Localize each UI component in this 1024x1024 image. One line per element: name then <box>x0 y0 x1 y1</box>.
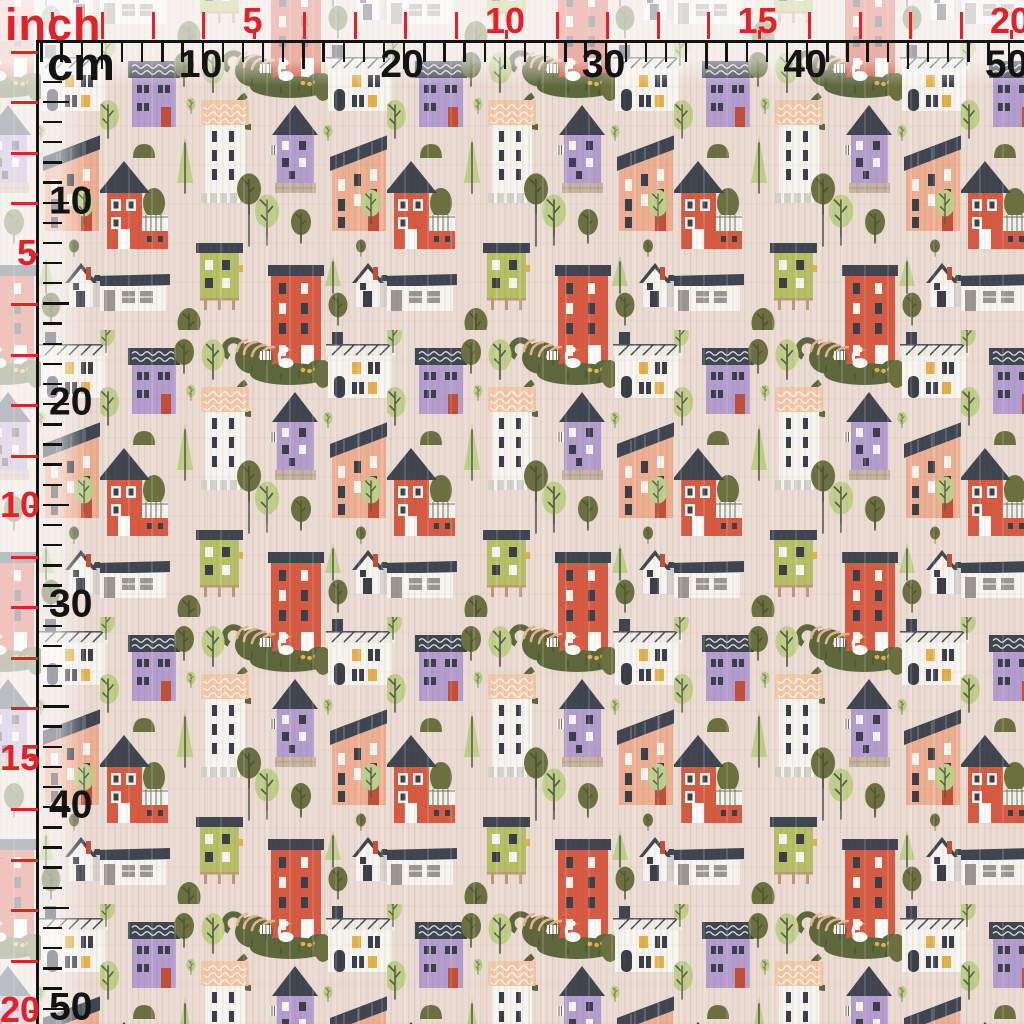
inch-tick <box>11 303 38 306</box>
cm-tick <box>262 43 264 62</box>
cm-tick <box>43 705 69 707</box>
cm-tick <box>242 43 244 62</box>
cm-tick <box>43 967 62 969</box>
cm-tick <box>947 43 949 62</box>
inch-tick <box>11 707 38 710</box>
inch-tick <box>11 152 38 155</box>
inch-tick <box>11 101 38 104</box>
cm-tick <box>40 43 42 62</box>
cm-tick <box>705 43 707 69</box>
cm-number: 50 <box>49 987 92 1024</box>
cm-number: 10 <box>179 45 222 84</box>
inch-tick <box>11 960 38 963</box>
cm-tick <box>443 43 445 62</box>
cm-tick <box>746 43 748 62</box>
cm-tick <box>101 43 103 69</box>
cm-tick <box>43 887 62 889</box>
cm-tick <box>43 302 69 304</box>
cm-tick <box>43 101 69 103</box>
cm-tick <box>907 43 909 69</box>
cm-tick <box>43 746 62 748</box>
cm-tick <box>43 846 62 848</box>
inch-tick <box>11 455 38 458</box>
cm-tick <box>484 43 486 62</box>
cm-number: 30 <box>582 45 625 84</box>
cm-tick <box>43 866 62 868</box>
cm-tick <box>43 947 62 949</box>
inch-number: 10 <box>485 3 525 39</box>
cm-tick <box>524 43 526 62</box>
inch-tick <box>11 606 38 609</box>
cm-number: 20 <box>49 383 92 422</box>
inch-tick <box>859 12 862 39</box>
inch-tick <box>909 12 912 39</box>
cm-tick <box>141 43 143 62</box>
inch-tick <box>404 12 407 39</box>
cm-tick <box>43 343 62 345</box>
inch-number: 15 <box>0 740 37 776</box>
cm-tick <box>43 443 62 445</box>
inch-tick <box>960 12 963 39</box>
cm-tick <box>725 43 727 62</box>
inch-number: 15 <box>737 3 777 39</box>
cm-tick <box>43 81 62 83</box>
inch-tick <box>11 657 38 660</box>
cm-tick <box>967 43 969 62</box>
cm-tick <box>887 43 889 62</box>
inch-tick <box>11 859 38 862</box>
cm-tick <box>43 927 62 929</box>
cm-tick <box>846 43 848 62</box>
inch-tick <box>606 12 609 39</box>
cm-tick <box>43 725 62 727</box>
inch-number: 20 <box>0 992 37 1024</box>
inch-tick <box>303 12 306 39</box>
cm-tick <box>161 43 163 62</box>
cm-tick <box>463 43 465 62</box>
cm-tick <box>43 484 62 486</box>
cm-number: 20 <box>380 45 423 84</box>
cm-tick <box>43 121 62 123</box>
cm-tick <box>363 43 365 62</box>
inch-tick <box>556 12 559 39</box>
cm-tick <box>43 544 62 546</box>
cm-tick <box>43 262 62 264</box>
cm-tick <box>43 907 69 909</box>
cm-number: 10 <box>49 181 92 220</box>
fabric-pattern <box>0 0 1024 1024</box>
cm-tick <box>60 43 62 62</box>
cm-tick <box>685 43 687 62</box>
inch-tick <box>101 12 104 39</box>
cm-tick <box>43 665 62 667</box>
cm-tick <box>322 43 324 62</box>
inch-tick <box>707 12 710 39</box>
cm-tick <box>43 504 69 506</box>
inch-number: 20 <box>990 3 1024 39</box>
inch-tick <box>11 354 38 357</box>
cm-number: 40 <box>783 45 826 84</box>
ruler-left-baseline <box>36 40 39 1024</box>
cm-number: 50 <box>985 45 1024 84</box>
cm-tick <box>43 322 62 324</box>
cm-tick <box>544 43 546 62</box>
inch-tick <box>11 51 38 54</box>
cm-tick <box>43 242 62 244</box>
cm-tick <box>504 43 506 69</box>
cm-tick <box>121 43 123 62</box>
inch-tick <box>202 12 205 39</box>
cm-tick <box>866 43 868 62</box>
inch-number: 5 <box>0 235 37 271</box>
inch-tick <box>455 12 458 39</box>
cm-tick <box>302 43 304 69</box>
inch-tick <box>11 202 38 205</box>
cm-tick <box>43 161 62 163</box>
cm-tick <box>43 282 62 284</box>
inch-tick <box>11 808 38 811</box>
cm-tick <box>282 43 284 62</box>
cm-tick <box>43 766 62 768</box>
cm-tick <box>43 645 62 647</box>
cm-number: 30 <box>49 584 92 623</box>
inch-tick <box>657 12 660 39</box>
cm-tick <box>43 564 62 566</box>
cm-tick <box>665 43 667 62</box>
inch-tick <box>354 12 357 39</box>
cm-tick <box>645 43 647 62</box>
cm-tick <box>81 43 83 62</box>
cm-tick <box>43 141 62 143</box>
cm-tick <box>927 43 929 62</box>
fabric-swatch-photo: inch cm 10203040505101520 10203040505101… <box>0 0 1024 1024</box>
inch-tick <box>808 12 811 39</box>
cm-tick <box>766 43 768 62</box>
inch-tick <box>11 909 38 912</box>
cm-tick <box>43 524 62 526</box>
cm-tick <box>43 363 62 365</box>
inch-tick <box>152 12 155 39</box>
cm-tick <box>43 685 62 687</box>
cm-number: 40 <box>49 786 92 825</box>
cm-tick <box>564 43 566 62</box>
cm-tick <box>43 463 62 465</box>
inch-number: 10 <box>0 487 37 523</box>
inch-tick <box>51 12 54 39</box>
inch-tick <box>11 556 38 559</box>
cm-tick <box>343 43 345 62</box>
inch-tick <box>11 404 38 407</box>
inch-number: 5 <box>242 3 262 39</box>
